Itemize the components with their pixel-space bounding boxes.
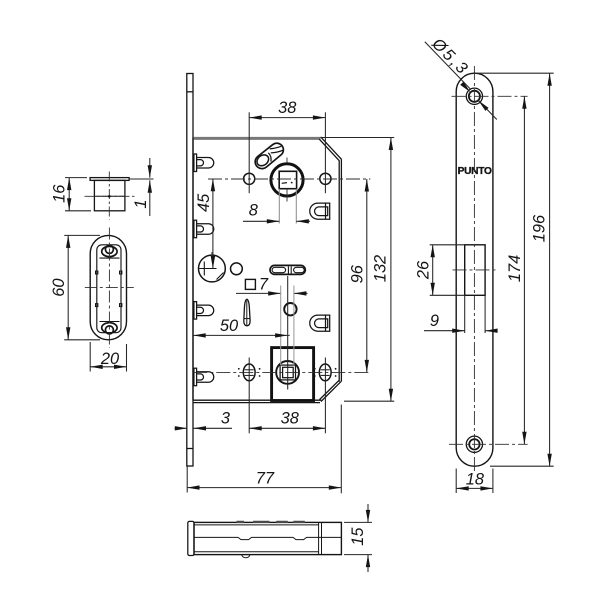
svg-text:7: 7	[259, 276, 269, 294]
svg-text:132: 132	[371, 255, 389, 282]
svg-text:196: 196	[530, 214, 548, 242]
svg-text:174: 174	[506, 255, 524, 282]
svg-text:50: 50	[220, 317, 238, 335]
svg-text:60: 60	[50, 278, 68, 296]
svg-text:16: 16	[51, 184, 69, 203]
svg-text:9: 9	[430, 312, 439, 330]
svg-text:8: 8	[249, 202, 259, 220]
svg-text:26: 26	[414, 260, 432, 280]
svg-text:38: 38	[281, 410, 300, 428]
svg-text:1: 1	[132, 199, 150, 208]
svg-text:18: 18	[466, 471, 485, 489]
svg-text:77: 77	[256, 469, 275, 487]
svg-text:45: 45	[195, 193, 213, 212]
svg-text:20: 20	[100, 350, 119, 368]
svg-text:3: 3	[221, 410, 230, 428]
svg-text:38: 38	[278, 99, 297, 117]
svg-text:96: 96	[348, 264, 366, 283]
svg-text:15: 15	[349, 527, 367, 546]
